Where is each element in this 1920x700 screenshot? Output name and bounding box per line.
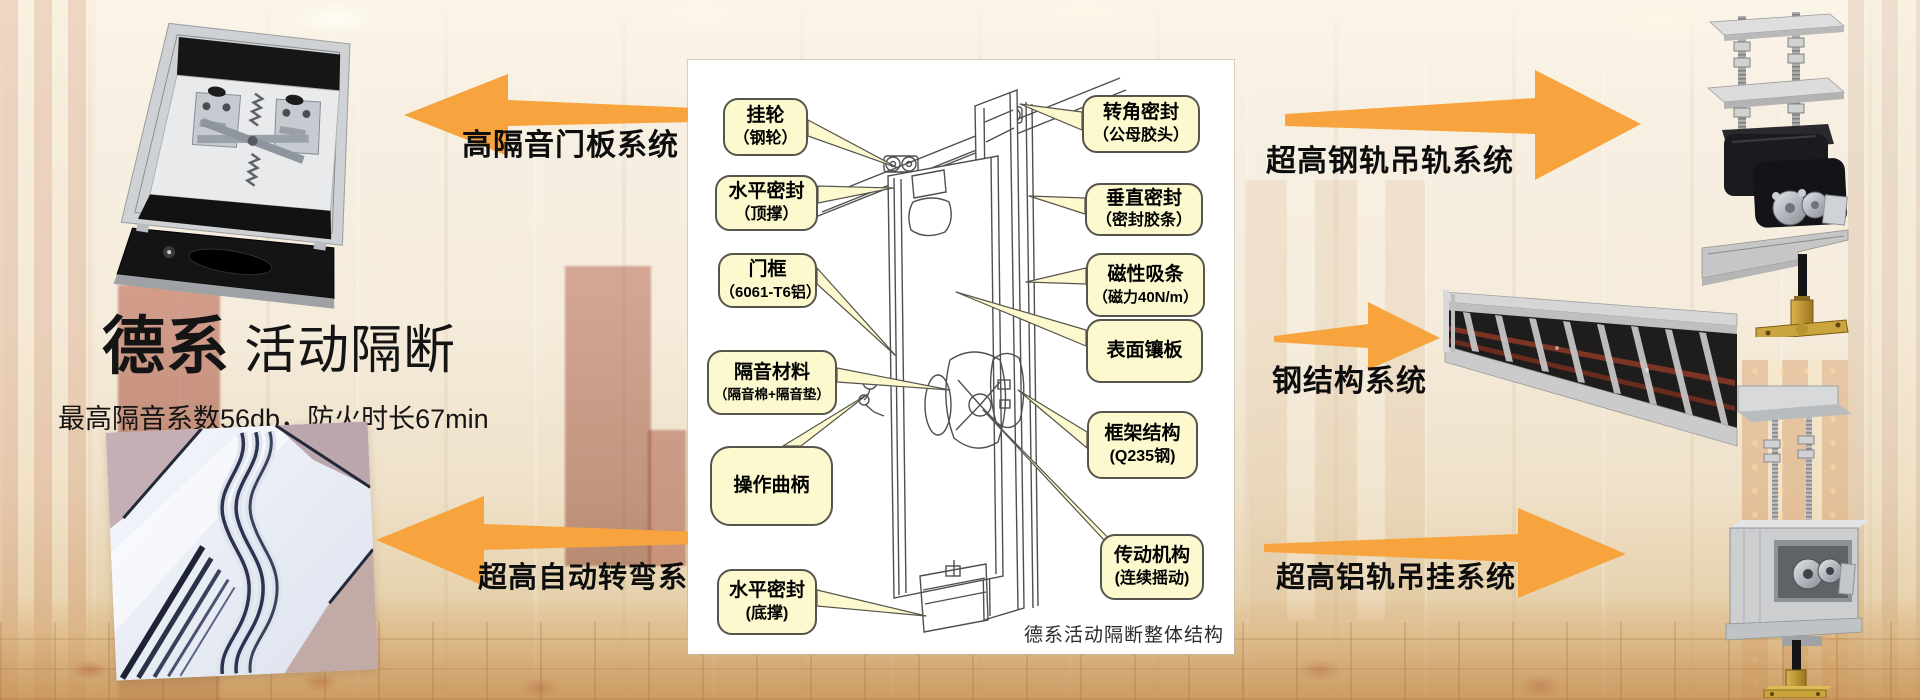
callout-frame-structure: 框架结构 (Q235钢) xyxy=(1087,411,1198,479)
callout-horizontal-seal-bottom: 水平密封 (底撑) xyxy=(717,569,817,635)
slide-root: 德系 活动隔断 最高隔音系数56db，防火时长67min xyxy=(0,0,1920,700)
callout-horizontal-seal-top: 水平密封 （顶撑） xyxy=(715,175,818,231)
callout-sound-insulation: 隔音材料 （隔音棉+隔音垫） xyxy=(707,350,837,415)
label-steel-structure-system: 钢结构系统 xyxy=(1272,356,1427,400)
callout-hanging-wheel: 挂轮 （钢轮） xyxy=(723,98,808,156)
brand-name: 德系 xyxy=(102,296,230,387)
callout-operating-crank: 操作曲柄 xyxy=(710,446,833,526)
door-panel-mechanism-photo xyxy=(80,0,400,312)
label-auto-turning-system: 超高自动转弯系统 xyxy=(478,554,718,596)
callout-vertical-seal: 垂直密封 （密封胶条） xyxy=(1085,183,1203,236)
callout-door-frame: 门框 （6061-T6铝） xyxy=(718,253,817,308)
page-title: 德系 活动隔断 xyxy=(58,296,558,387)
label-aluminum-rail-system: 超高铝轨吊挂系统 xyxy=(1276,554,1516,596)
steel-hanger-photo xyxy=(1698,2,1863,337)
diagram-panel: 挂轮 （钢轮） 水平密封 （顶撑） 门框 （6061-T6铝） 隔音材料 （隔音… xyxy=(688,60,1234,654)
headline: 德系 活动隔断 最高隔音系数56db，防火时长67min xyxy=(58,296,558,436)
aluminum-hanger-photo xyxy=(1722,378,1872,698)
auto-turning-track-photo xyxy=(106,421,379,680)
product-name: 活动隔断 xyxy=(244,308,456,383)
label-steel-rail-system: 超高钢轨吊轨系统 xyxy=(1266,136,1514,180)
label-door-panel-system: 高隔音门板系统 xyxy=(462,120,679,164)
callout-transmission-mechanism: 传动机构 (连续摇动) xyxy=(1100,534,1204,600)
callout-magnetic-strip: 磁性吸条 （磁力40N/m） xyxy=(1086,253,1205,317)
callout-surface-panel: 表面镶板 xyxy=(1086,319,1203,383)
diagram-caption: 德系活动隔断整体结构 xyxy=(1024,620,1230,647)
callout-corner-seal: 转角密封 （公母胶头） xyxy=(1082,95,1200,153)
